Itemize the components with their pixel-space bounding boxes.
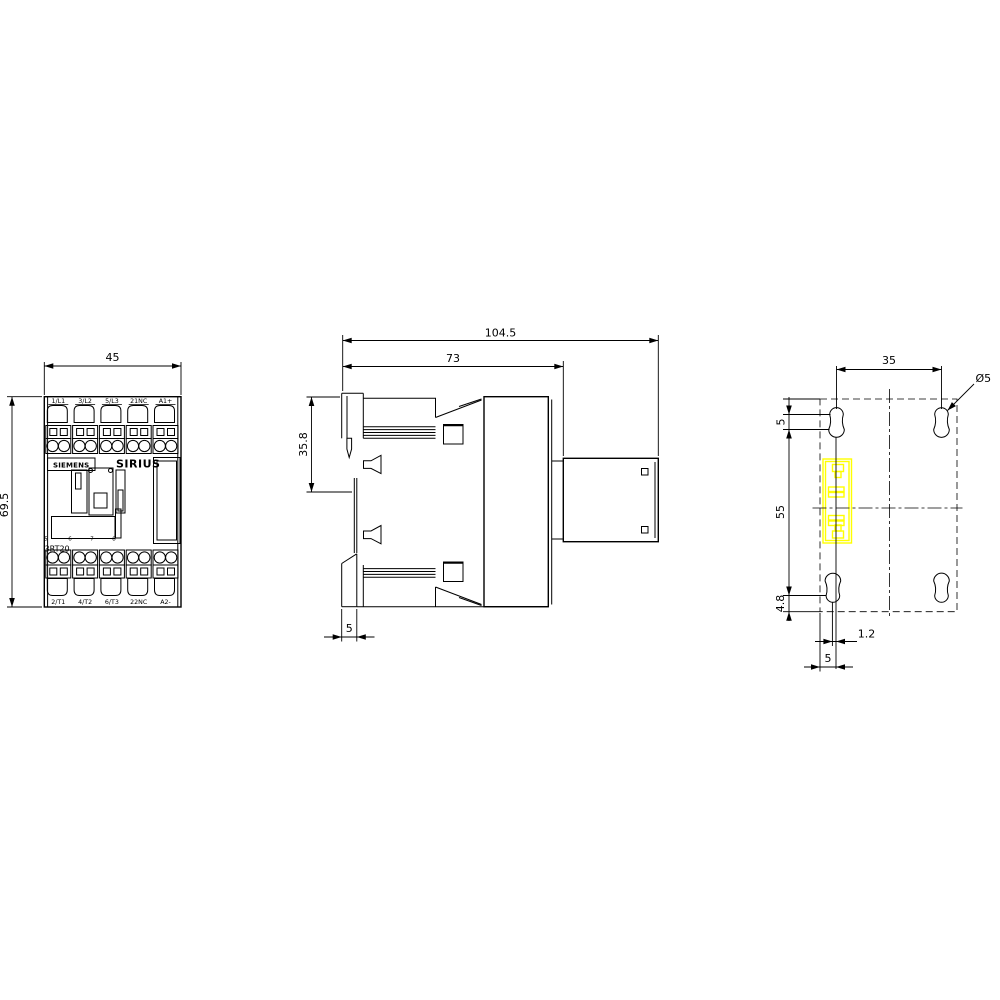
bottom-offset-label: 4.8 [774,595,787,613]
terminal-label-A1plus: A1+ [159,398,173,405]
scale-mark-8: 8 [112,537,116,543]
left-dimension-chain: 5 55 4.8 [774,397,831,621]
front-top-terminal-labels: 1/L1 3/L2 5/L3 21NC A1+ [48,398,175,405]
hole-misalignment-label: 1.2 [858,628,876,641]
bottom-dimensions: 1.2 5 [804,438,875,672]
front-bottom-terminal-labels: 2/T1 4/T2 6/T3 22NC A2- [51,599,170,606]
front-bottom-terminals [46,550,178,596]
side-body-depth-label: 73 [446,352,460,365]
hole-spacing-label: 35 [882,354,896,367]
coil-connector-highlight [823,459,852,543]
hole-diameter-callout: Ø5 [948,372,992,411]
mounting-hole-bottom-right [934,573,950,602]
mounting-hole-top-right [934,408,950,438]
side-total-depth-label: 104.5 [485,327,517,340]
side-foot-label: 5 [346,622,353,635]
brand-label: SIEMENS [53,462,89,470]
scale-mark-7: 7 [90,537,94,543]
scale-marks: 5 6 7 8 [44,537,116,543]
terminal-label-22NC: 22NC [130,599,148,606]
mechanism-window [52,468,126,539]
mounting-hole-bottom-left [825,573,841,602]
vertical-spacing-label: 55 [774,505,787,519]
brand-plate: SIEMENS [48,458,96,471]
dimension-drawing: 45 69.5 1/L1 3/L2 5/L3 21NC A1+ [0,0,1000,1000]
terminal-label-1L1: 1/L1 [51,398,65,405]
mounting-holes [825,408,949,603]
hole-diameter-label: Ø5 [976,372,992,385]
side-view: 104.5 73 35.8 5 [297,327,658,642]
front-width-label: 45 [106,351,120,364]
coil-terminal-extension [552,458,659,541]
drawing-canvas: 45 69.5 1/L1 3/L2 5/L3 21NC A1+ [0,0,1000,1000]
terminal-label-A2minus: A2- [160,599,171,606]
scale-mark-5: 5 [44,537,48,543]
terminal-label-3L2: 3/L2 [78,398,92,405]
side-profile [342,393,659,606]
terminal-label-2T1: 2/T1 [51,599,65,606]
terminal-label-5L3: 5/L3 [105,398,119,405]
scale-mark-6: 6 [68,537,72,543]
front-top-terminals [46,406,178,454]
side-upper-height-dimension: 35.8 [297,397,352,492]
side-total-depth-dimension: 104.5 [343,327,659,457]
slot-pitch-label: 5 [775,419,788,426]
accessory-slot [154,458,181,544]
side-foot-dimension: 5 [324,609,375,642]
terminal-label-6T3: 6/T3 [105,599,119,606]
front-view: 45 69.5 1/L1 3/L2 5/L3 21NC A1+ [0,351,181,607]
drilling-plan: 35 Ø5 5 55 4.8 [774,354,991,672]
front-height-label: 69.5 [0,493,11,518]
edge-offset-label: 5 [825,652,832,665]
terminal-label-21NC: 21NC [130,398,148,405]
terminal-label-4T2: 4/T2 [78,599,92,606]
hole-spacing-dimension: 35 [837,354,942,409]
front-width-dimension: 45 [44,351,181,395]
side-upper-height-label: 35.8 [297,432,310,457]
side-body-depth-dimension: 73 [343,352,564,456]
mounting-hole-top-left [829,408,845,438]
front-height-dimension: 69.5 [0,397,42,607]
